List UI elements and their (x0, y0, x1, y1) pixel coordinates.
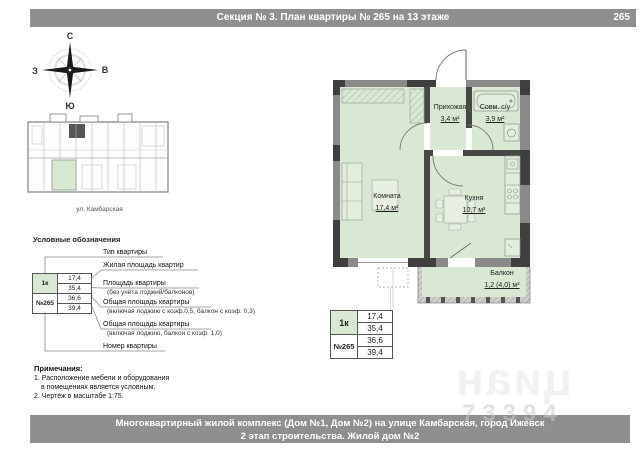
room-area: 17,4 м² (357, 205, 417, 212)
washing-machine (504, 124, 519, 141)
note-line-3: 2. Чертёж в масштабе 1:75. (34, 392, 169, 401)
notes-block: Примечания: 1. Расположение мебели и обо… (34, 364, 169, 401)
compass-rose-icon: С Ю З В (28, 28, 112, 112)
total-area-10-value: 39,4 (358, 347, 393, 359)
bathroom-area: 3,9 м² (467, 116, 523, 123)
apartment-number: №265 (331, 335, 358, 359)
notes-title: Примечания: (34, 364, 169, 373)
footer-line-2: 2 этап строительства. Жилой дом №2 (30, 430, 630, 443)
watermark-digits: 73394 (462, 400, 564, 428)
entry-door-opening (436, 80, 466, 87)
room-label-kitchen: Кухня 10,7 м² (446, 195, 502, 214)
watermark-logo: циан (428, 352, 598, 406)
room-label-room: Комната 17,4 м² (357, 193, 417, 212)
balcony-door-opening (448, 258, 475, 267)
floor-plan-sheet: Секция № 3. План квартиры № 265 на 13 эт… (0, 0, 640, 452)
key-plan-street-caption: ул. Камбарская (22, 206, 177, 213)
key-plan-stair-core (69, 124, 85, 138)
legend-label-type: Тип квартиры (103, 249, 147, 256)
compass-west-label: З (32, 66, 38, 76)
legend-label-total-area-10: Общая площадь квартиры (включая лоджию, … (103, 321, 222, 337)
compass-north-label: С (67, 31, 74, 41)
note-line-1: 1. Расположение мебели и оборудования (34, 374, 169, 383)
legend-label-number: Номер квартиры (103, 343, 157, 350)
total-area-03-value: 36,6 (358, 335, 393, 347)
apartment-area-value: 35,4 (358, 323, 393, 335)
legend-label-total-area-03: Общая площадь квартиры (включая лоджию с… (103, 299, 255, 315)
balcony-area: 1,2 (4,0) м² (474, 282, 530, 289)
note-line-2: в помещениях является условным. (41, 383, 169, 392)
sheet-title: Секция № 3. План квартиры № 265 на 13 эт… (217, 12, 450, 23)
compass-east-label: В (102, 65, 109, 75)
room-label-bathroom: Совм. с/у 3,9 м² (467, 104, 523, 123)
apartment-type: 1к (331, 311, 358, 335)
fridge (505, 239, 520, 256)
legend-label-area: Площадь квартиры (без учёта лоджий/балко… (103, 280, 195, 296)
key-plan (22, 110, 177, 205)
key-plan-highlighted-unit (52, 160, 76, 190)
header-bar: Секция № 3. План квартиры № 265 на 13 эт… (30, 9, 636, 27)
living-area-value: 17,4 (358, 311, 393, 323)
kitchen-counter (505, 156, 520, 214)
room-label-balcony: Балкон 1,2 (4,0) м² (474, 270, 530, 289)
kitchen-area: 10,7 м² (446, 207, 502, 214)
wardrobe-hatch (342, 89, 404, 103)
apartment-info-table: 1к 17,4 35,4 №265 36,6 39,4 (330, 310, 393, 359)
legend-label-living-area: Жилая площадь квартир (103, 262, 184, 269)
sheet-number: 265 (613, 9, 630, 27)
